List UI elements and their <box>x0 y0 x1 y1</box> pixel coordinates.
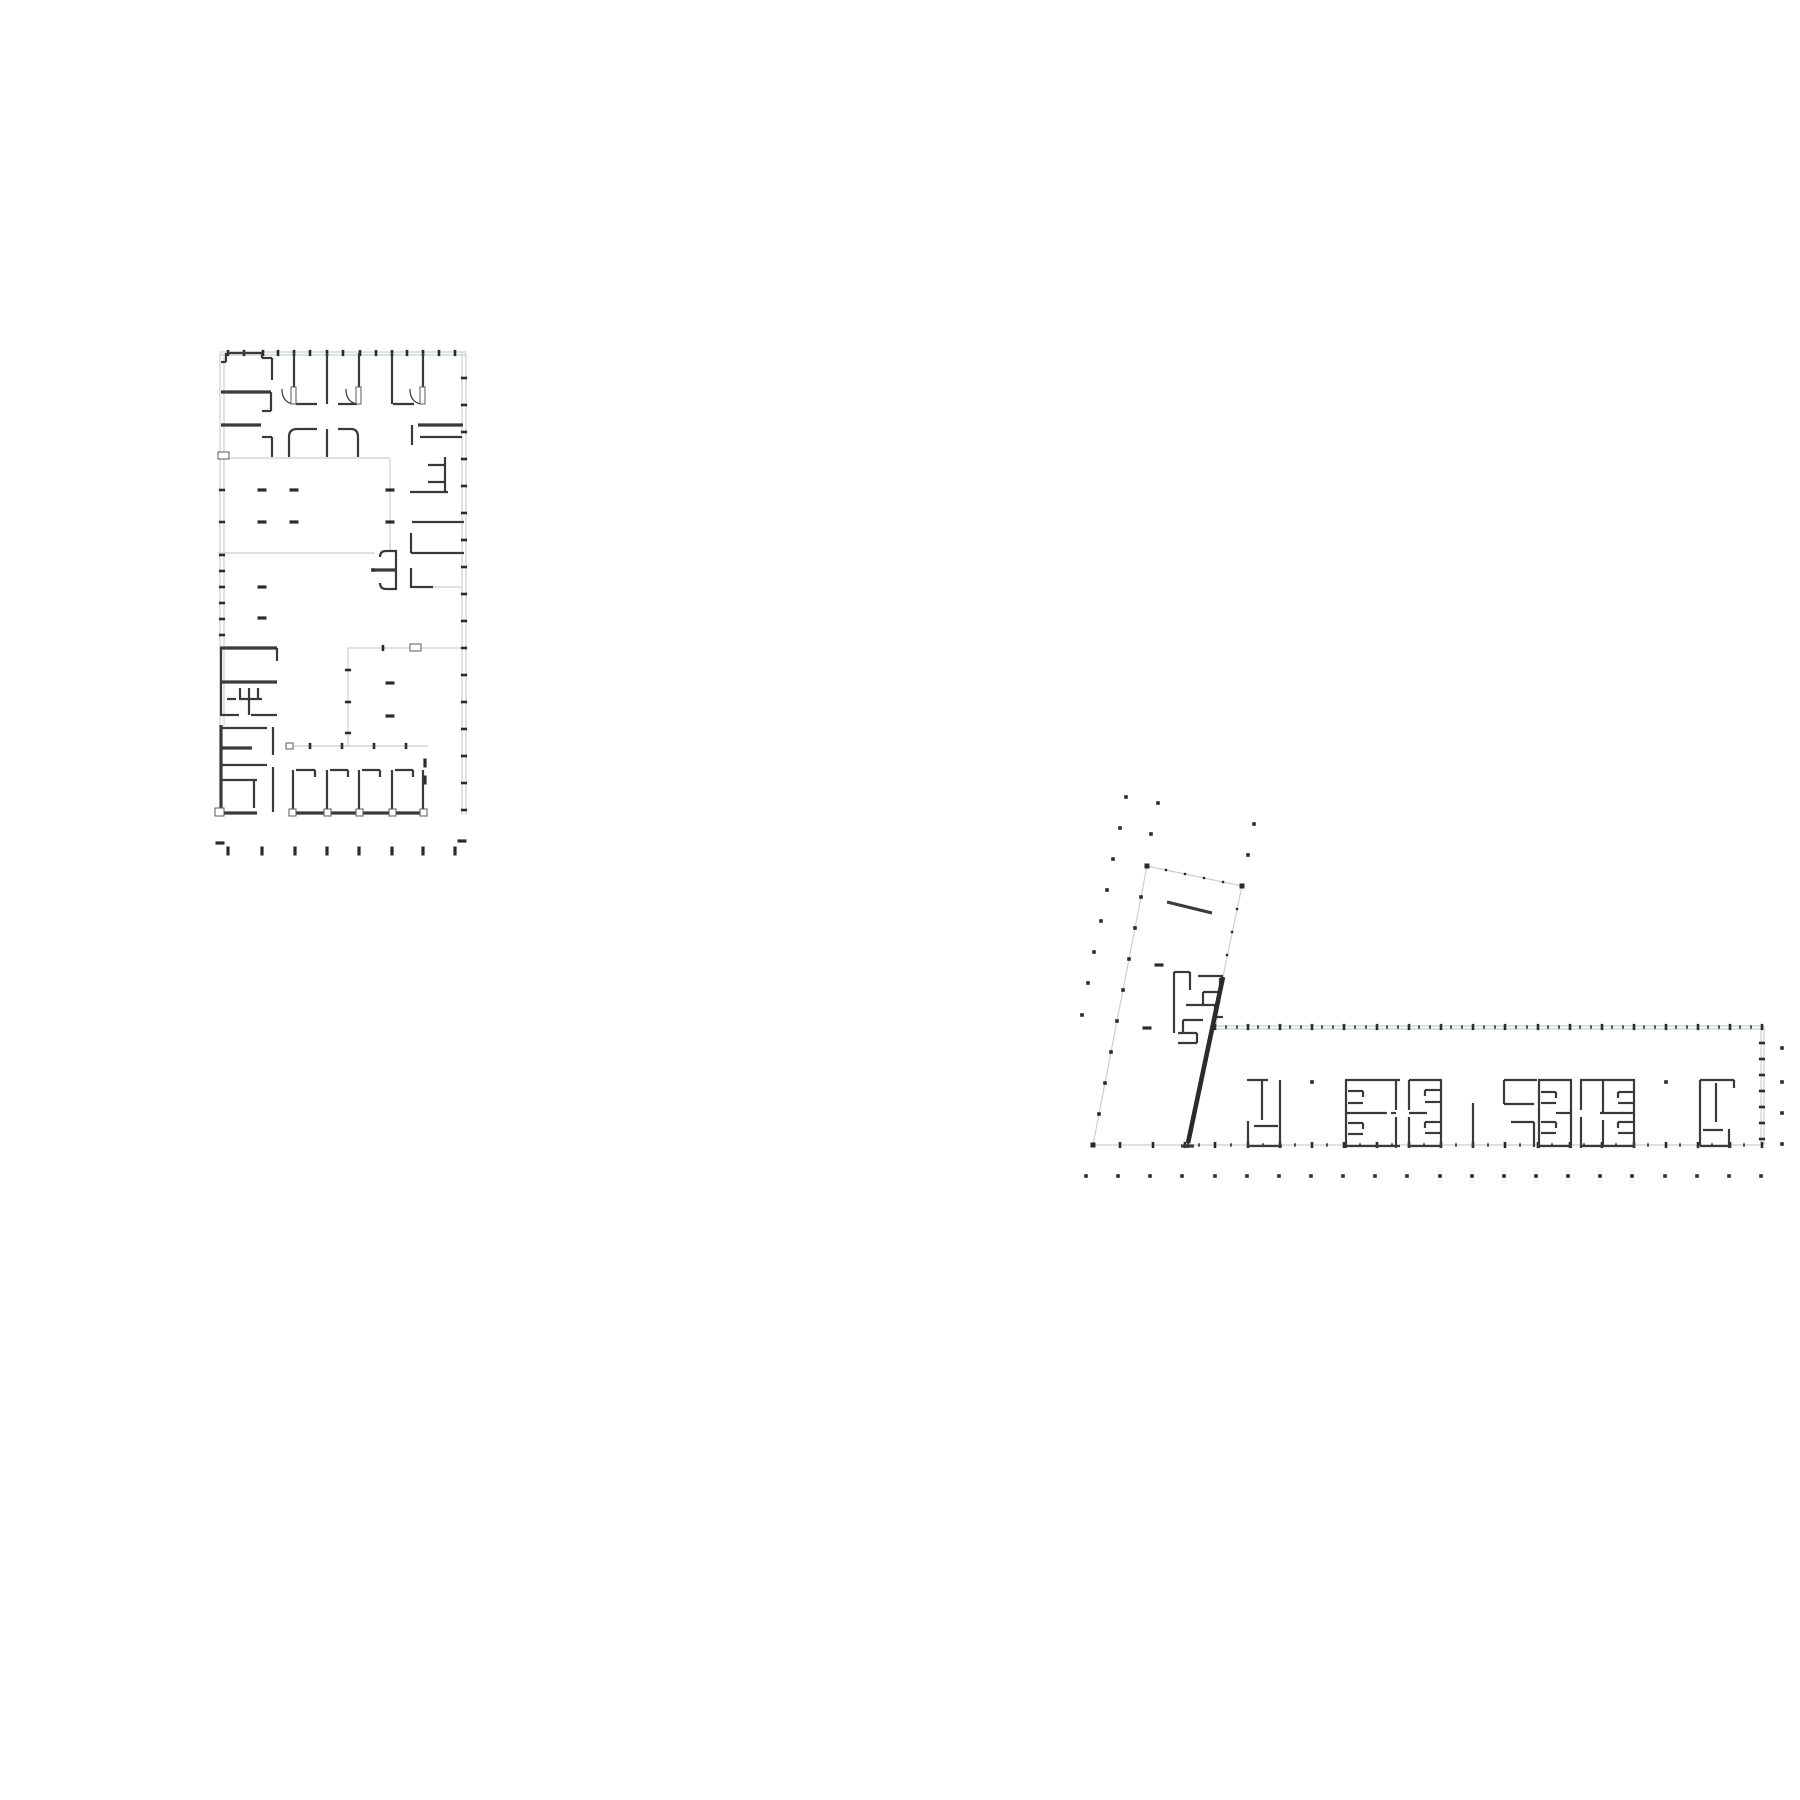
minor-grid-tick <box>1547 1025 1549 1028</box>
grid-dot <box>1115 1019 1119 1023</box>
column-marker <box>390 847 393 856</box>
column-tick <box>219 489 225 492</box>
minor-grid-dot <box>1203 877 1205 879</box>
minor-grid-tick <box>1483 1025 1485 1028</box>
structural-wall-segment <box>1188 977 1223 1143</box>
door-swing-arc <box>346 389 357 404</box>
column-tick <box>382 645 385 651</box>
upper-left-floor-plan <box>215 350 467 856</box>
grid-dot <box>1149 832 1153 836</box>
minor-grid-tick <box>1579 1025 1581 1028</box>
grid-dot <box>1127 957 1131 961</box>
minor-grid-dot <box>1231 931 1233 933</box>
column-tick <box>1759 1042 1765 1045</box>
column-tick <box>219 521 225 524</box>
column-tick <box>461 782 467 785</box>
grid-dot <box>1438 1174 1442 1178</box>
column-tick <box>461 647 467 650</box>
column-marker <box>386 714 395 717</box>
minor-grid-tick <box>1354 1025 1356 1028</box>
grid-dot <box>1630 1174 1634 1178</box>
grid-dot <box>1310 1080 1314 1084</box>
column-tick <box>461 539 467 542</box>
wall-path <box>338 429 358 457</box>
column-tick <box>461 512 467 515</box>
door-frame <box>389 809 396 816</box>
column-tick <box>461 809 467 812</box>
minor-grid-tick <box>1675 1025 1677 1028</box>
grid-dot <box>1111 857 1115 861</box>
column-tick <box>219 554 225 557</box>
grid-dot <box>1252 822 1256 826</box>
column-tick <box>1247 1024 1250 1030</box>
grid-dot <box>1148 1174 1152 1178</box>
column-marker <box>290 520 299 523</box>
grid-dot <box>1156 801 1160 805</box>
column-tick <box>309 350 312 356</box>
column-tick <box>1633 1024 1636 1030</box>
grid-dot <box>1663 1174 1667 1178</box>
grid-dot <box>1405 1174 1409 1178</box>
column-marker <box>290 488 299 491</box>
column-tick <box>1472 1024 1475 1030</box>
column-tick <box>1119 1142 1122 1148</box>
column-marker <box>1143 1026 1152 1029</box>
column-marker <box>357 847 360 856</box>
column-marker <box>258 488 267 491</box>
grid-dot <box>1664 1080 1668 1084</box>
grid-facade-line <box>1147 866 1242 886</box>
minor-grid-tick <box>1647 1143 1649 1146</box>
grid-dot <box>1080 1013 1084 1017</box>
minor-grid-tick <box>1519 1143 1521 1146</box>
column-tick <box>405 743 408 749</box>
column-tick <box>1214 1142 1217 1148</box>
column-tick <box>373 743 376 749</box>
column-tick <box>1343 1024 1346 1030</box>
column-tick <box>1440 1024 1443 1030</box>
grid-dot <box>1341 1174 1345 1178</box>
column-tick <box>219 634 225 637</box>
column-tick <box>1152 1142 1155 1148</box>
grid-dot <box>1099 919 1103 923</box>
grid-dot <box>1121 988 1125 992</box>
door-frame <box>289 809 296 816</box>
column-marker <box>258 585 267 588</box>
grid-dot <box>1084 1174 1088 1178</box>
minor-grid-tick <box>1643 1025 1645 1028</box>
column-tick <box>1311 1142 1314 1148</box>
minor-grid-tick <box>1236 1025 1238 1028</box>
column-tick <box>438 350 441 356</box>
minor-grid-tick <box>1289 1025 1291 1028</box>
door-frame <box>420 387 425 404</box>
minor-grid-tick <box>1743 1143 1745 1146</box>
grid-dot <box>1116 1174 1120 1178</box>
minor-grid-tick <box>1321 1025 1323 1028</box>
door-frame <box>218 452 229 459</box>
door-swing-arc <box>410 389 421 404</box>
column-tick <box>1759 1106 1765 1109</box>
minor-grid-tick <box>1300 1025 1302 1028</box>
column-tick <box>345 701 351 704</box>
door-frame <box>420 809 427 816</box>
column-tick <box>1761 1142 1764 1148</box>
column-marker <box>293 847 296 856</box>
column-tick <box>219 586 225 589</box>
minor-grid-dot <box>1165 869 1167 871</box>
grid-dot <box>1103 1081 1107 1085</box>
grid-dot <box>1470 1174 1474 1178</box>
grid-dot <box>1780 1080 1784 1084</box>
minor-grid-tick <box>1455 1143 1457 1146</box>
grid-dot <box>1118 826 1122 830</box>
minor-grid-tick <box>1487 1143 1489 1146</box>
minor-grid-tick <box>1429 1025 1431 1028</box>
minor-grid-tick <box>1418 1025 1420 1028</box>
door-frame <box>356 809 363 816</box>
column-tick <box>1504 1024 1507 1030</box>
grid-dot <box>1086 981 1090 985</box>
grid-dot <box>1097 1112 1101 1116</box>
grid-facade-line <box>1093 866 1147 1145</box>
grid-dot <box>1759 1174 1763 1178</box>
column-tick <box>461 674 467 677</box>
minor-grid-tick <box>1294 1143 1296 1146</box>
grid-dot <box>1109 1050 1113 1054</box>
column-marker <box>423 759 426 768</box>
column-tick <box>219 570 225 573</box>
grid-dot <box>1534 1174 1538 1178</box>
minor-grid-dot <box>1236 908 1238 910</box>
column-tick <box>345 732 351 735</box>
column-tick <box>1759 1074 1765 1077</box>
column-tick <box>461 620 467 623</box>
column-tick <box>461 593 467 596</box>
column-tick <box>277 350 280 356</box>
column-tick <box>309 743 312 749</box>
grid-dot <box>1695 1174 1699 1178</box>
column-marker <box>453 847 456 856</box>
column-marker <box>458 839 467 842</box>
minor-grid-tick <box>1230 1143 1232 1146</box>
column-marker <box>386 520 395 523</box>
column-tick <box>461 755 467 758</box>
double-wall-segment <box>1167 902 1212 913</box>
grid-dot <box>1780 1142 1784 1146</box>
grid-dot <box>1780 1046 1784 1050</box>
column-tick <box>1697 1024 1700 1030</box>
minor-grid-tick <box>1526 1025 1528 1028</box>
column-tick <box>406 350 409 356</box>
minor-grid-tick <box>1558 1025 1560 1028</box>
grid-dot <box>1133 926 1137 930</box>
grid-dot <box>1139 895 1143 899</box>
column-tick <box>1279 1024 1282 1030</box>
wall-path <box>289 429 317 457</box>
column-marker <box>260 847 263 856</box>
column-tick <box>1761 1024 1764 1030</box>
column-marker <box>386 681 395 684</box>
column-tick <box>1537 1024 1540 1030</box>
grid-dot <box>1092 950 1096 954</box>
grid-dot <box>1502 1174 1506 1178</box>
column-tick <box>1759 1058 1765 1061</box>
minor-grid-dot <box>1222 881 1224 883</box>
grid-dot <box>1245 1174 1249 1178</box>
lower-right-floor-plan <box>1080 795 1784 1178</box>
grid-dot <box>1780 1111 1784 1115</box>
column-tick <box>345 669 351 672</box>
column-marker <box>226 847 229 856</box>
door-frame <box>291 387 296 404</box>
minor-grid-tick <box>1611 1025 1613 1028</box>
grid-dot <box>1180 1174 1184 1178</box>
column-tick <box>461 404 467 407</box>
column-tick <box>1376 1024 1379 1030</box>
door-frame <box>410 644 421 651</box>
column-marker <box>386 488 395 491</box>
minor-grid-tick <box>1268 1025 1270 1028</box>
column-tick <box>454 350 457 356</box>
grid-dot <box>1727 1174 1731 1178</box>
column-tick <box>1569 1024 1572 1030</box>
minor-grid-tick <box>1494 1025 1496 1028</box>
column-marker <box>325 847 328 856</box>
door-frame <box>286 743 293 749</box>
grid-dot <box>1373 1174 1377 1178</box>
floor-plan-canvas <box>0 0 1800 1800</box>
minor-grid-tick <box>1750 1025 1752 1028</box>
door-frame <box>324 809 331 816</box>
minor-grid-tick <box>1397 1025 1399 1028</box>
grid-dot <box>1277 1174 1281 1178</box>
grid-dot <box>1246 853 1250 857</box>
column-tick <box>375 350 378 356</box>
column-marker <box>258 520 267 523</box>
column-tick <box>461 377 467 380</box>
grid-dot <box>1213 1174 1217 1178</box>
grid-corner-marker <box>1145 864 1150 869</box>
column-tick <box>342 350 345 356</box>
column-tick <box>461 701 467 704</box>
column-tick <box>219 618 225 621</box>
minor-grid-tick <box>1679 1143 1681 1146</box>
minor-grid-tick <box>1590 1025 1592 1028</box>
door-frame <box>356 387 361 404</box>
minor-grid-tick <box>1450 1025 1452 1028</box>
column-marker <box>216 841 225 844</box>
grid-dot <box>1124 795 1128 799</box>
minor-grid-tick <box>1461 1025 1463 1028</box>
column-tick <box>1601 1024 1604 1030</box>
grid-dot <box>1105 888 1109 892</box>
minor-grid-tick <box>1198 1143 1200 1146</box>
column-tick <box>1759 1122 1765 1125</box>
minor-grid-tick <box>1739 1025 1741 1028</box>
column-tick <box>461 728 467 731</box>
grid-dot <box>1309 1174 1313 1178</box>
column-tick <box>219 602 225 605</box>
minor-grid-tick <box>1257 1025 1259 1028</box>
column-tick <box>1408 1024 1411 1030</box>
grid-corner-marker <box>1091 1143 1096 1148</box>
column-marker <box>258 616 267 619</box>
grid-corner-marker <box>1240 884 1245 889</box>
column-tick <box>1759 1138 1765 1141</box>
minor-grid-tick <box>1707 1025 1709 1028</box>
minor-grid-tick <box>1326 1143 1328 1146</box>
column-tick <box>1665 1142 1668 1148</box>
minor-grid-tick <box>1386 1025 1388 1028</box>
minor-grid-tick <box>1365 1025 1367 1028</box>
minor-grid-tick <box>1225 1025 1227 1028</box>
column-tick <box>1759 1090 1765 1093</box>
column-tick <box>461 431 467 434</box>
column-tick <box>1504 1142 1507 1148</box>
grid-dot <box>1598 1174 1602 1178</box>
minor-grid-tick <box>1718 1025 1720 1028</box>
minor-grid-tick <box>1332 1025 1334 1028</box>
column-tick <box>1311 1024 1314 1030</box>
column-marker <box>421 847 424 856</box>
column-tick <box>1729 1024 1732 1030</box>
floor-plan-sheet <box>0 0 1800 1800</box>
minor-grid-tick <box>1686 1025 1688 1028</box>
minor-grid-dot <box>1226 954 1228 956</box>
column-tick <box>1665 1024 1668 1030</box>
column-marker <box>1155 963 1164 966</box>
minor-grid-tick <box>1515 1025 1517 1028</box>
minor-grid-tick <box>1654 1025 1656 1028</box>
column-tick <box>461 458 467 461</box>
column-tick <box>341 743 344 749</box>
column-tick <box>461 485 467 488</box>
grid-dot <box>1566 1174 1570 1178</box>
minor-grid-tick <box>1622 1025 1624 1028</box>
minor-grid-dot <box>1184 873 1186 875</box>
door-frame <box>215 808 224 816</box>
column-tick <box>461 566 467 569</box>
